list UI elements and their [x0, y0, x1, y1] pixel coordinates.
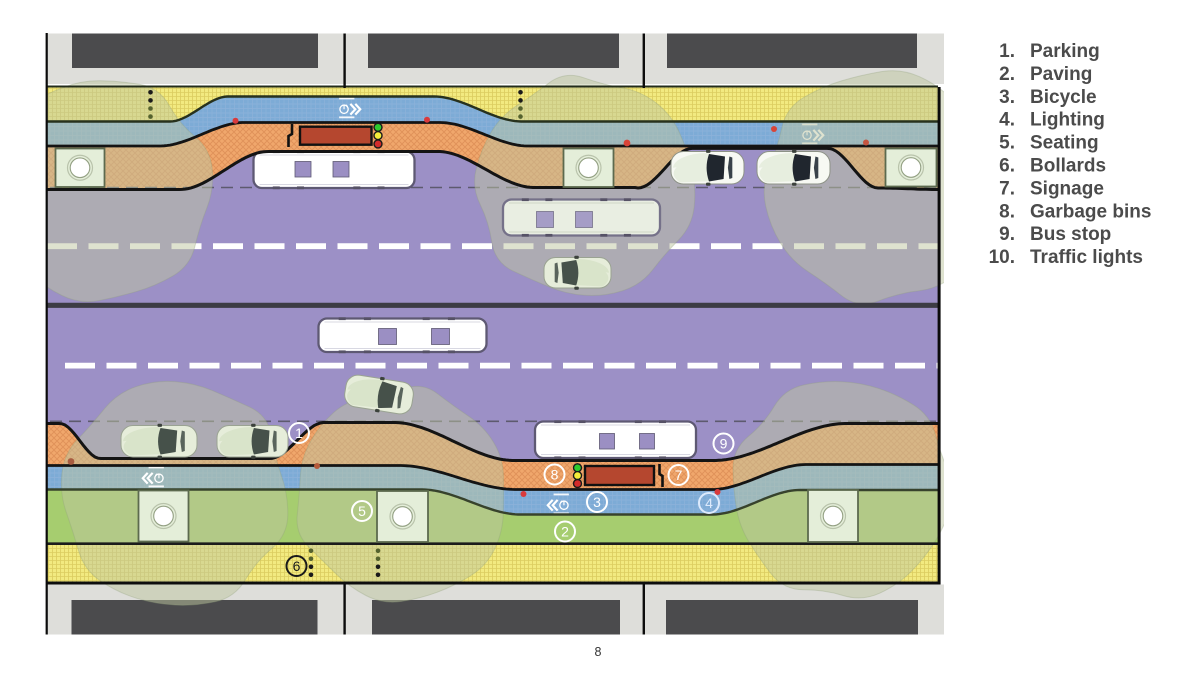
svg-text:Parking: Parking	[1030, 41, 1100, 62]
svg-text:1: 1	[295, 425, 303, 441]
svg-text:7: 7	[675, 467, 683, 483]
svg-text:Bicycle: Bicycle	[1030, 87, 1097, 108]
svg-text:4.: 4.	[999, 110, 1015, 131]
svg-text:Traffic lights: Traffic lights	[1030, 247, 1143, 268]
svg-text:8: 8	[595, 645, 602, 659]
svg-text:3: 3	[593, 494, 601, 510]
svg-text:Lighting: Lighting	[1030, 110, 1105, 131]
svg-text:Bus stop: Bus stop	[1030, 224, 1111, 245]
svg-text:6: 6	[293, 558, 301, 574]
svg-text:4: 4	[705, 495, 713, 511]
svg-text:Seating: Seating	[1030, 133, 1099, 154]
svg-text:2.: 2.	[999, 64, 1015, 85]
svg-text:3.: 3.	[999, 87, 1015, 108]
svg-text:Bollards: Bollards	[1030, 156, 1106, 177]
svg-text:7.: 7.	[999, 178, 1015, 199]
svg-text:5: 5	[358, 503, 366, 519]
svg-text:9: 9	[720, 435, 728, 451]
svg-text:8: 8	[551, 466, 559, 482]
svg-text:8.: 8.	[999, 201, 1015, 222]
svg-text:2: 2	[561, 523, 569, 539]
svg-text:5.: 5.	[999, 133, 1015, 154]
svg-text:Signage: Signage	[1030, 178, 1104, 199]
svg-text:6.: 6.	[999, 156, 1015, 177]
svg-text:Garbage bins: Garbage bins	[1030, 201, 1151, 222]
svg-text:10.: 10.	[989, 247, 1015, 268]
svg-text:Paving: Paving	[1030, 64, 1092, 85]
svg-text:1.: 1.	[999, 41, 1015, 62]
svg-text:9.: 9.	[999, 224, 1015, 245]
